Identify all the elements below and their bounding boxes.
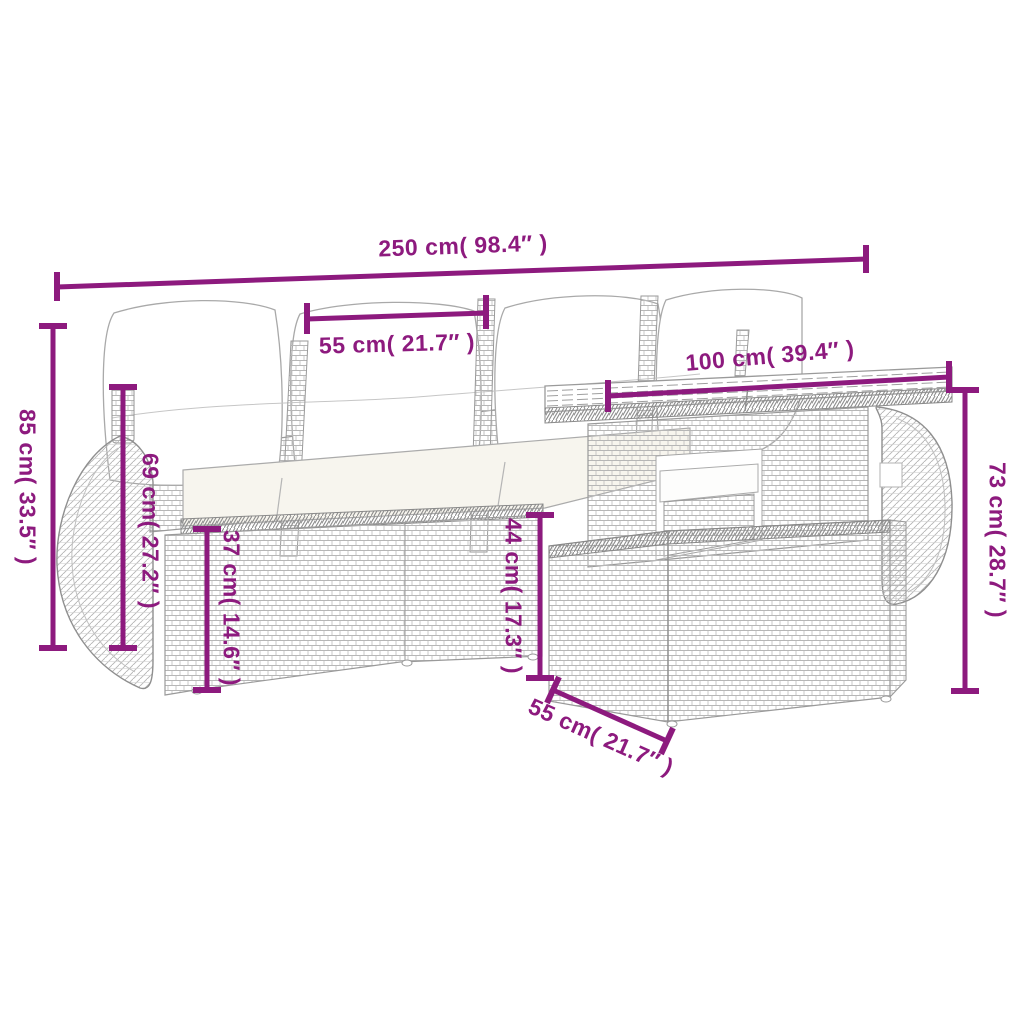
ottoman-left-face — [549, 531, 668, 722]
dim-label-seat-height: 44 cm( 17.3″ ) — [500, 518, 527, 674]
dim-label-seat-width: 55 cm( 21.7″ ) — [319, 328, 476, 359]
dim-label-arm-height: 69 cm( 27.2″ ) — [137, 453, 164, 609]
ottoman-foot — [881, 696, 891, 702]
ottoman-front-face — [668, 520, 890, 722]
ottoman — [549, 520, 906, 727]
dim-label-back-height: 85 cm( 33.5″ ) — [14, 409, 41, 565]
ottoman-right-sliver — [890, 520, 906, 697]
ottoman-foot — [667, 721, 677, 727]
sofa-foot — [402, 660, 412, 666]
sofa-foot — [528, 654, 538, 660]
dimension-diagram: 250 cm( 98.4″ ) 55 cm( 21.7″ ) 100 cm( 3… — [0, 0, 1024, 1024]
dim-label-table-height: 73 cm( 28.7″ ) — [984, 462, 1011, 618]
dim-label-base-height: 37 cm( 14.6″ ) — [218, 530, 245, 686]
dim-line-table-height — [951, 390, 979, 691]
right-arm-notch — [880, 463, 902, 487]
